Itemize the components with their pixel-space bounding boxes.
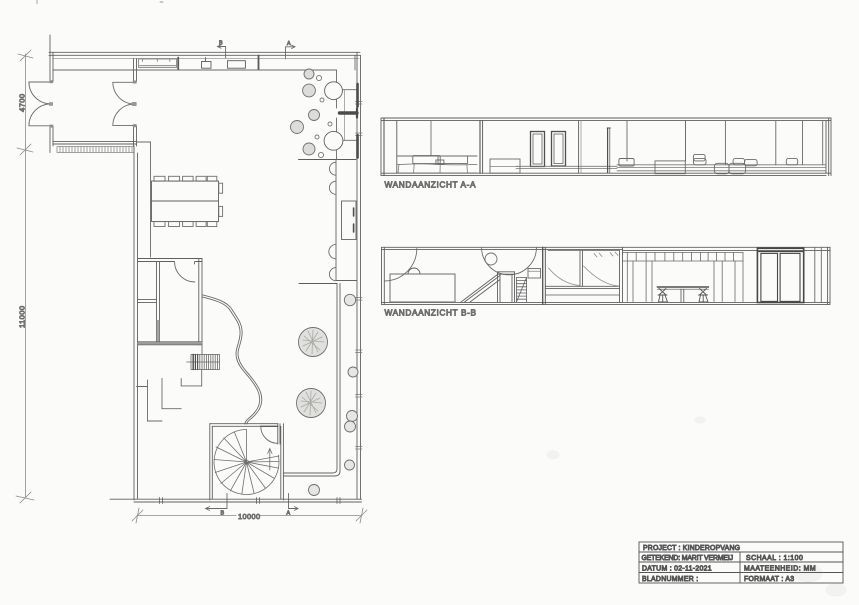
svg-text:A: A xyxy=(287,41,291,47)
svg-text:11000: 11000 xyxy=(18,305,27,328)
svg-text:WANDAANZICHT A-A: WANDAANZICHT A-A xyxy=(385,180,477,190)
svg-text:B: B xyxy=(221,511,225,517)
svg-text:BLADNUMMER :: BLADNUMMER : xyxy=(642,576,698,583)
svg-text:B: B xyxy=(219,41,223,47)
svg-text:FORMAAT : A3: FORMAAT : A3 xyxy=(744,576,794,583)
svg-text:SCHAAL : 1:100: SCHAAL : 1:100 xyxy=(746,555,803,562)
svg-text:4700: 4700 xyxy=(18,94,27,113)
svg-text:WANDAANZICHT B-B: WANDAANZICHT B-B xyxy=(385,308,477,318)
svg-text:DATUM : 02-11-2021: DATUM : 02-11-2021 xyxy=(642,566,712,573)
svg-text:10000: 10000 xyxy=(238,512,261,521)
svg-text:GETEKEND: MARIT VERMEIJ: GETEKEND: MARIT VERMEIJ xyxy=(642,555,733,562)
svg-text:A: A xyxy=(287,511,291,517)
svg-text:PROJECT : KINDEROPVANG: PROJECT : KINDEROPVANG xyxy=(643,545,740,552)
